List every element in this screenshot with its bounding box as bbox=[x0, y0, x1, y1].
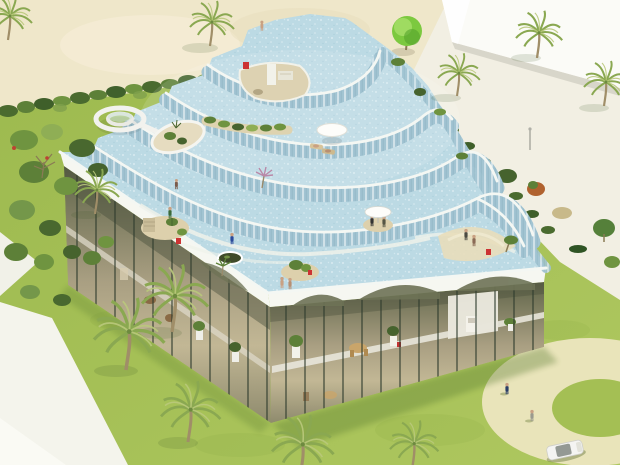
red-flower bbox=[12, 146, 16, 150]
stair-courtyard bbox=[240, 62, 310, 101]
red-flower bbox=[45, 156, 49, 160]
rendering-canvas bbox=[0, 0, 620, 465]
architectural-rendering bbox=[0, 0, 620, 465]
